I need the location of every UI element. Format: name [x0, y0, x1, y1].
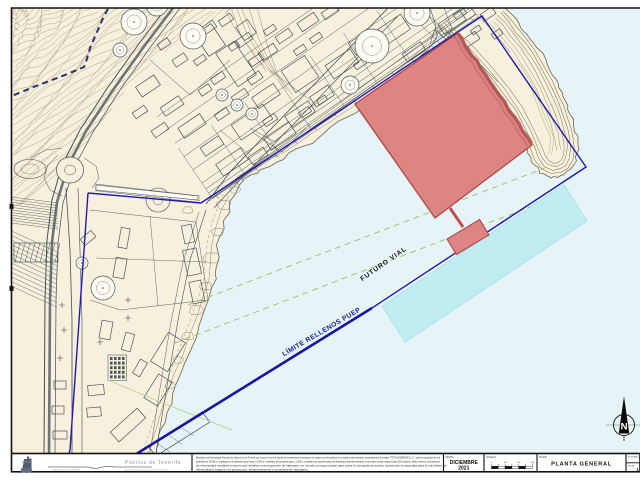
- svg-text:Nº PLANO: Nº PLANO: [628, 456, 639, 459]
- svg-text:ESCALA: ESCALA: [487, 456, 497, 459]
- svg-text:N: N: [621, 422, 628, 433]
- svg-text:SANTA CRUZ DE TENERIFE: SANTA CRUZ DE TENERIFE: [52, 468, 80, 471]
- svg-text:2021: 2021: [458, 466, 469, 472]
- svg-text:Autoridad Portuaria de Santa C: Autoridad Portuaria de Santa Cruz de Ten…: [125, 468, 168, 471]
- svg-text:Puertos de Tenerife: Puertos de Tenerife: [125, 460, 181, 466]
- svg-text:200: 200: [517, 462, 520, 464]
- svg-text:PLANO: PLANO: [539, 456, 547, 459]
- svg-text:PLANTA GENERAL: PLANTA GENERAL: [551, 462, 612, 468]
- svg-text:electricidad a buques y la pro: electricidad a buques y la producción, a…: [196, 468, 309, 472]
- svg-text:FECHA: FECHA: [446, 456, 455, 459]
- svg-text:300: 300: [531, 462, 534, 464]
- svg-text:HOJA: HOJA: [628, 465, 634, 468]
- svg-text:0: 0: [491, 462, 492, 464]
- svg-text:100: 100: [504, 462, 507, 464]
